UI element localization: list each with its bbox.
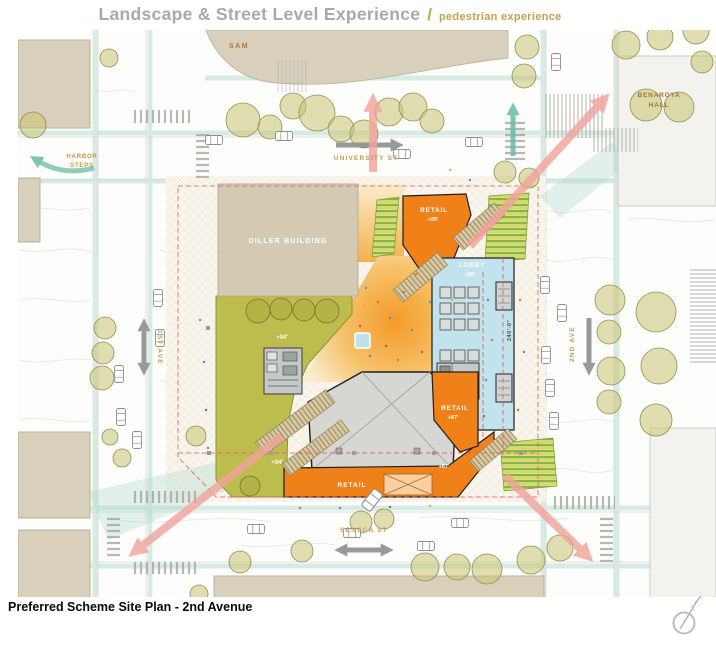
terrace-upper-elev: +94'	[276, 335, 288, 341]
harbor-steps-label-2: STEPS	[70, 163, 94, 169]
plaza-water-feature	[355, 333, 370, 348]
west-building-mid	[18, 178, 40, 242]
slide: Landscape & Street Level Experience / pe…	[0, 0, 716, 645]
retail-east-elev: +87'	[448, 415, 459, 421]
retail-east-label: RETAIL	[441, 405, 469, 412]
retail-south-label: RETAIL	[338, 482, 367, 489]
west-building-south1	[18, 432, 90, 518]
harbor-steps-label-1: HARBOR	[66, 154, 97, 160]
elevator-cores	[440, 287, 479, 361]
first-ave-label: 1ST AVE	[156, 330, 163, 365]
north-arrow-icon	[674, 596, 702, 634]
lobby-elev: +89'	[465, 272, 476, 278]
caption: Preferred Scheme Site Plan - 2nd Avenue	[8, 600, 252, 614]
sam-label: SAM	[229, 43, 249, 50]
retail-south-elev: +87'	[439, 464, 450, 470]
lobby-label: LOBBY	[459, 262, 486, 269]
benaroya-label-2: HALL	[649, 102, 670, 109]
benaroya-label-1: BENAROYA	[637, 92, 680, 99]
right-south-building	[650, 428, 716, 598]
site-plan: SAM BENAROYA HALL HARBOR STEPS DILLER BU…	[0, 0, 716, 645]
retail-north-label: RETAIL	[420, 207, 448, 214]
west-building-south2	[18, 530, 90, 598]
retail-north-elev: +89'	[428, 217, 439, 223]
dimension-240: 240'-0"	[507, 320, 513, 341]
diller-label: DILLER BUILDING	[248, 238, 327, 245]
university-st-label: UNIVERSITY ST	[334, 155, 399, 162]
seneca-st-label: SENECA ST	[340, 527, 388, 534]
second-ave-label: 2ND AVE	[569, 326, 576, 362]
terrace-lower-elev: +94'	[271, 460, 283, 466]
terrace-core	[264, 348, 302, 394]
